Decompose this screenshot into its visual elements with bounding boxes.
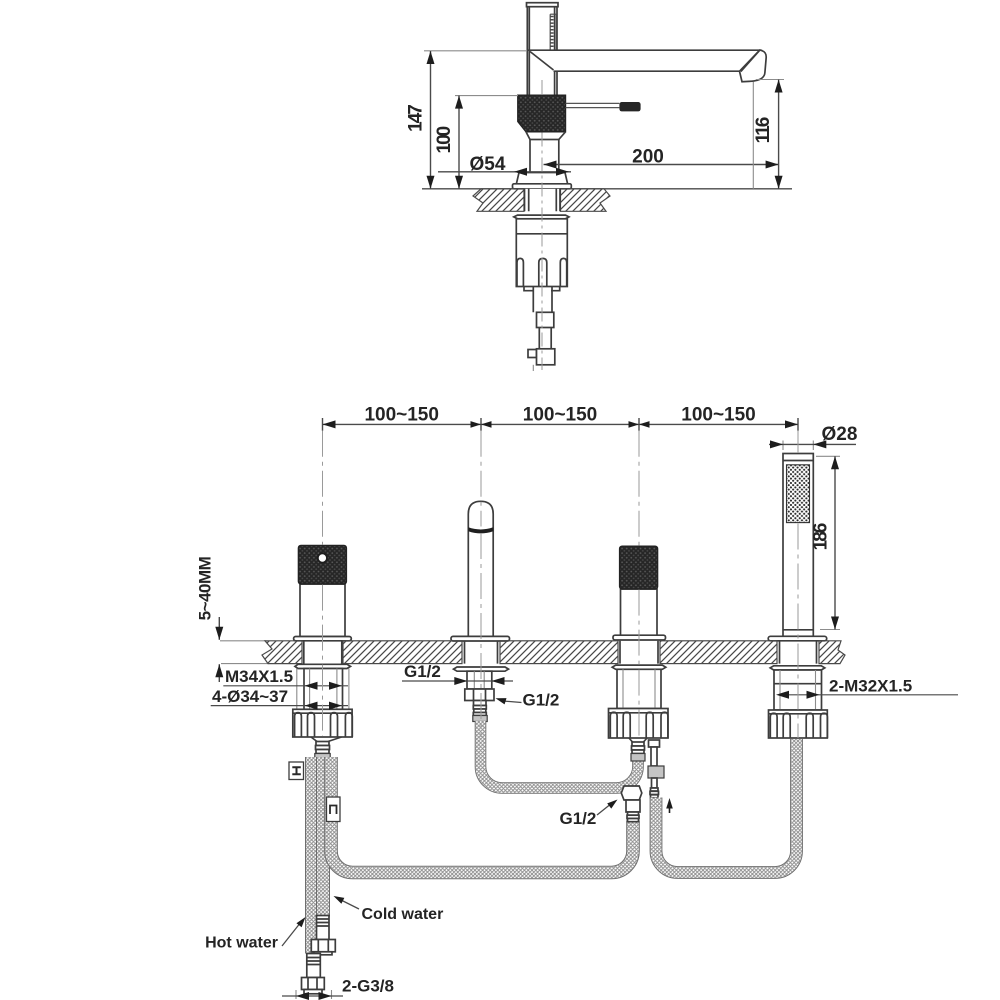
svg-text:2-M32X1.5: 2-M32X1.5 [829,677,912,696]
svg-text:Ø28: Ø28 [822,424,858,445]
svg-text:M34X1.5: M34X1.5 [225,667,293,686]
svg-text:100: 100 [434,126,455,153]
svg-text:G1/2: G1/2 [404,662,441,681]
svg-text:147: 147 [406,105,427,132]
svg-text:4-Ø34~37: 4-Ø34~37 [212,687,288,706]
svg-text:Cold water: Cold water [362,906,444,923]
svg-text:2-G3/8: 2-G3/8 [342,977,394,996]
svg-text:100~150: 100~150 [681,405,756,426]
svg-text:G1/2: G1/2 [560,809,597,828]
svg-text:100~150: 100~150 [364,405,439,426]
svg-text:G1/2: G1/2 [523,691,560,710]
svg-text:100~150: 100~150 [523,405,598,426]
svg-text:Ø54: Ø54 [470,154,506,175]
svg-text:5~40MM: 5~40MM [196,556,215,620]
svg-text:200: 200 [632,147,664,168]
svg-text:Hot water: Hot water [205,935,278,952]
svg-text:186: 186 [811,523,832,550]
svg-text:116: 116 [753,117,774,143]
